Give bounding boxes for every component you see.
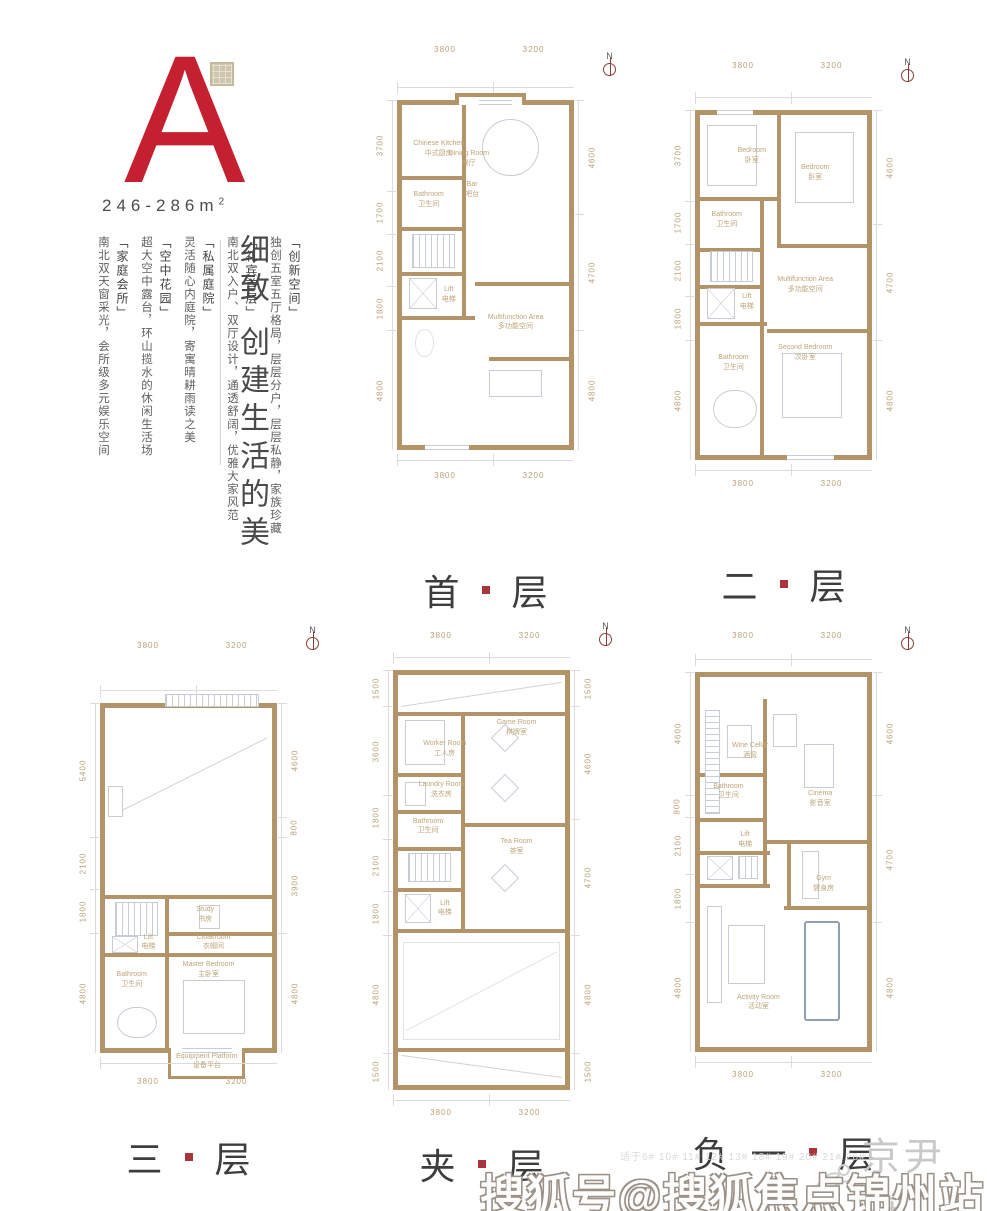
room-label-second-bedroom: Second Bedroom次卧室: [778, 343, 832, 363]
staircase: [115, 902, 158, 936]
interior-wall: [700, 884, 770, 888]
room-label-wine-cellar: Wine Cellar酒窖: [732, 741, 768, 761]
armchair: [415, 329, 433, 356]
dim-right: 1500 4600 4700 4800 1500: [570, 670, 596, 1090]
dim-bottom: 3800 3200: [695, 1052, 872, 1096]
tea-table: [491, 864, 519, 892]
room-label-lift: Lift电梯: [438, 899, 452, 919]
interior-wall: [700, 197, 777, 201]
feature-tag: 「家庭会所」: [114, 236, 131, 568]
interior-wall: [787, 840, 791, 907]
dim-left: 5400 2100 1800 4800: [74, 703, 100, 1053]
room-label-multifunction-area: Multifunction Area多功能空间: [488, 313, 544, 333]
staircase: [412, 234, 455, 268]
plan-body: Wine Cellar酒窖 Cinema影音室 Bathroom卫生间 Lift…: [695, 672, 872, 1052]
feature-item: 「私属庭院」 灵活随心内庭院，寄寓晴耕雨读之美: [181, 236, 217, 568]
plan-body: Bedroom卧室 Bedroom卧室 Bathroom卫生间 Multifun…: [695, 110, 872, 460]
interior-wall: [402, 227, 462, 231]
cinema-seat: [804, 744, 834, 788]
north-icon: [901, 637, 914, 650]
interior-wall: [398, 929, 468, 933]
north-indicator: N: [901, 626, 914, 650]
red-dot-icon: [780, 580, 788, 588]
interior-wall: [700, 322, 767, 326]
north-icon: [603, 63, 616, 76]
feature-tag: 「礼宾首层」: [243, 236, 260, 568]
interior-wall: [398, 1048, 565, 1052]
sofa: [707, 906, 722, 1002]
game-table: [491, 773, 519, 801]
room-label-bathroom: Bathroom卫生间: [117, 970, 147, 990]
interior-wall: [777, 115, 781, 244]
room-label-bathroom: Bathroom卫生间: [414, 190, 444, 210]
seal-icon: [210, 62, 234, 86]
slope-line: [398, 1048, 565, 1085]
room-label-bedroom: Bedroom卧室: [801, 163, 829, 183]
slope-line: [398, 675, 565, 712]
interior-wall: [461, 823, 565, 827]
interior-wall: [763, 699, 767, 884]
room-label-master-bedroom: Master Bedroom主卧室: [183, 960, 235, 980]
plan-second-floor: N 3800 3200 3700 1700 2100 1800 4800: [669, 60, 898, 610]
interior-wall: [784, 906, 868, 910]
dim-bottom: 3800 3200: [695, 460, 872, 506]
floor-name-second: 二层: [669, 558, 898, 610]
interior-wall: [105, 953, 165, 957]
north-icon: [306, 637, 319, 650]
bathtub: [713, 390, 756, 427]
dim-left: 1500 3600 1800 2100 1800 4800 1500: [367, 670, 393, 1090]
room-label-cinema: Cinema影音室: [808, 789, 832, 809]
interior-wall: [398, 888, 461, 892]
room-label-game-room: Game Room棋牌室: [497, 719, 537, 739]
north-indicator: N: [901, 58, 914, 82]
plan-body: Study书房 Lift电梯 Cloakroom衣帽间 Bathroom卫生间 …: [100, 703, 277, 1053]
sofa: [489, 370, 542, 397]
interior-wall: [475, 282, 569, 286]
interior-wall: [398, 847, 461, 851]
plan-third-floor: N 3800 3200 5400 2100 1800 4800: [74, 640, 303, 1183]
room-label-bedroom: Bedroom卧室: [738, 146, 766, 166]
floorplan-poster: A 246-286m2 细致 创建生活的美 「创新空间」 独创五室五厅格局，层层…: [0, 0, 987, 1211]
staircase: [408, 853, 451, 882]
feature-text: 灵活随心内庭院，寄寓晴耕雨读之美: [181, 236, 197, 568]
red-dot-icon: [482, 586, 490, 594]
room-label-bathroom: Bathroom卫生间: [718, 353, 748, 373]
interior-wall: [402, 176, 462, 180]
dim-left: 4600 800 2100 1800 4800: [669, 672, 695, 1052]
room-label-study: Study书房: [196, 906, 214, 926]
interior-wall: [777, 244, 867, 248]
dim-top: 3800 3200: [393, 630, 570, 670]
room-label-cloakroom: Cloakroom衣帽间: [197, 933, 231, 953]
feature-item: 「空中花园」 超大空中露台，环山揽水的休闲生活场: [138, 236, 174, 568]
room-label-laundry-room: Laundry Room洗衣房: [418, 780, 464, 800]
interior-wall: [700, 818, 763, 822]
plan-mezzanine: N 3800 3200 1500 3600 1800 2100 1800 480…: [367, 630, 596, 1190]
room-label-lift: Lift电梯: [738, 830, 752, 850]
room-label-equipment-platform: Equipment Platform设备平台: [176, 1052, 237, 1072]
red-dot-icon: [185, 1153, 193, 1161]
lift-shaft: [405, 894, 432, 923]
dim-right: 4600 4700 4800: [574, 100, 600, 450]
room-label-lift: Lift电梯: [442, 286, 456, 306]
feature-tag: 「空中花园」: [157, 236, 174, 568]
void-diagonal: [403, 942, 560, 1040]
dim-left: 3700 1700 2100 1800 4800: [371, 100, 397, 450]
feature-tag: 「私属庭院」: [200, 236, 217, 568]
feature-item: 「礼宾首层」 南北双入户、双厅设计，通透舒阔，优雅大家风范: [224, 236, 260, 568]
lift-shaft: [707, 288, 735, 319]
window: [479, 100, 512, 105]
room-label-bathroom: Bathroom卫生间: [413, 817, 443, 837]
north-indicator: N: [306, 626, 319, 650]
interior-wall: [105, 895, 272, 899]
room-label-tea-room: Tea Room茶室: [501, 837, 533, 857]
north-indicator: N: [603, 52, 616, 76]
unit-area: 246-286m2: [102, 196, 229, 216]
interior-wall: [489, 357, 569, 361]
room-label-activity-room: Activity Room活动室: [737, 993, 780, 1013]
cinema-seat: [773, 714, 796, 747]
plan-body: Worker Room工人房 Game Room棋牌室 Laundry Room…: [393, 670, 570, 1090]
north-icon: [901, 69, 914, 82]
billiard-table: [804, 921, 841, 1021]
interior-wall: [398, 712, 565, 716]
roof-stair-strip: [165, 694, 259, 707]
interior-wall: [398, 810, 461, 814]
staircase: [738, 856, 758, 878]
room-label-bathroom: Bathroom卫生间: [712, 211, 742, 231]
bed: [183, 980, 245, 1034]
interior-wall: [398, 773, 461, 777]
north-icon: [599, 633, 612, 646]
room-label-bathroom: Bathroom卫生间: [713, 782, 743, 802]
feature-text: 独创五室五厅格局，层层分户，层层私静，家族珍藏: [267, 236, 283, 568]
interior-wall: [700, 851, 770, 855]
north-indicator: N: [599, 622, 612, 646]
plan-basement: N 3800 3200 4600 800 2100 1800 4800: [669, 630, 898, 1178]
window: [787, 455, 834, 460]
watermark: 搜狐号@搜狐焦点锦州站: [480, 1160, 985, 1211]
room-label-worker-room: Worker Room工人房: [423, 739, 466, 759]
interior-wall: [165, 895, 169, 1048]
interior-wall: [461, 929, 565, 933]
plan-first-floor: N 3800 3200 3700 1700 2100 1800 4800: [371, 44, 600, 616]
room-label-lift: Lift电梯: [141, 933, 155, 953]
interior-wall: [763, 840, 867, 844]
table: [728, 925, 765, 984]
interior-wall: [462, 105, 466, 316]
dim-top: 3800 3200: [397, 44, 574, 100]
dim-left: 3700 1700 2100 1800 4800: [669, 110, 695, 460]
floor-name-third: 三层: [74, 1131, 303, 1183]
room-label-bar: Bar吧台: [465, 180, 479, 200]
interior-wall: [402, 316, 475, 320]
dim-right: 4600 4700 4800: [872, 672, 898, 1052]
feature-list: 「创新空间」 独创五室五厅格局，层层分户，层层私静，家族珍藏 「礼宾首层」 南北…: [88, 236, 303, 568]
window: [717, 110, 754, 115]
staircase: [710, 251, 753, 282]
terrace-slope-line: [105, 708, 272, 895]
dim-bottom: 3800 3200: [397, 450, 574, 500]
feature-text: 南北双天窗采光，会所级多元娱乐空间: [95, 236, 111, 568]
dim-right: 4600 800 3900 4800: [277, 703, 303, 1053]
dim-top: 3800 3200: [695, 60, 872, 110]
feature-item: 「创新空间」 独创五室五厅格局，层层分户，层层私静，家族珍藏: [267, 236, 303, 568]
bathtub: [117, 1007, 157, 1038]
floor-name-first: 首层: [371, 564, 600, 616]
room-label-lift: Lift电梯: [740, 292, 754, 312]
feature-tag: 「创新空间」: [286, 236, 303, 568]
room-label-multifunction-area: Multifunction Area多功能空间: [777, 275, 833, 295]
feature-item: 「家庭会所」 南北双天窗采光，会所级多元娱乐空间: [95, 236, 131, 568]
lift-shaft: [112, 936, 139, 953]
room-label-gym: Gym健身房: [813, 874, 834, 894]
dim-right: 4600 4700 4800: [872, 110, 898, 460]
feature-text: 南北双入户、双厅设计，通透舒阔，优雅大家风范: [224, 236, 240, 568]
room-label-dining-room: Dining Room餐厅: [449, 150, 489, 170]
lift-shaft: [707, 856, 734, 880]
window: [425, 445, 468, 450]
interior-wall: [165, 953, 272, 957]
lift-shaft: [409, 278, 437, 309]
interior-wall: [767, 329, 867, 333]
dim-top: 3800 3200: [695, 630, 872, 672]
plan-body: Chinese Kitchen中式厨房 Dining Room餐厅 Bar吧台 …: [397, 100, 574, 450]
dining-table: [482, 119, 539, 177]
planter: [108, 786, 123, 817]
feature-text: 超大空中露台，环山揽水的休闲生活场: [138, 236, 154, 568]
interior-wall: [402, 272, 462, 276]
dim-bottom: 3800 3200: [393, 1090, 570, 1134]
unit-letter: A: [124, 28, 245, 210]
